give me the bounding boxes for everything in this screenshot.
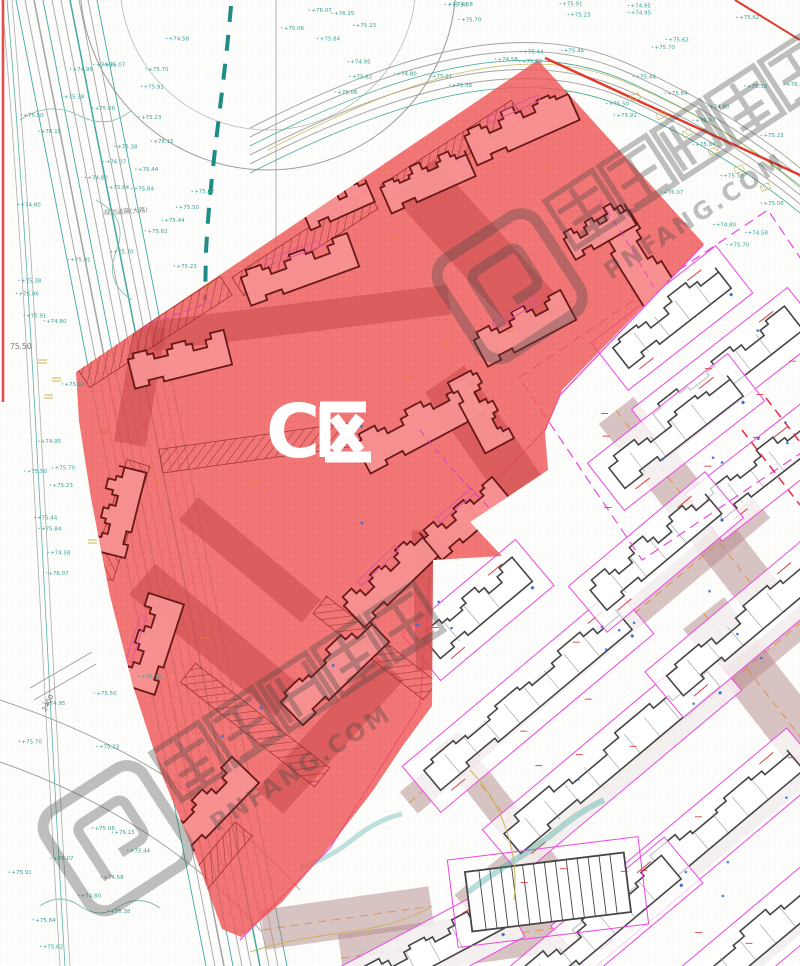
spot-elevation: +75.06 [284, 26, 305, 32]
spot-elevation: +75.62 [43, 944, 63, 950]
spot-elevation-dot [103, 161, 104, 162]
spot-elevation-dot [24, 470, 25, 471]
spot-elevation: +75.44 [635, 75, 656, 81]
spot-elevation: +75.91 [144, 84, 164, 90]
spot-elevation: +75.44 [564, 48, 585, 54]
spot-elevation: +75.50 [27, 469, 48, 475]
survey-point [721, 461, 724, 464]
site-plan: +75.38+75.44+75.50+75.62+75.84+75.91+74.… [0, 0, 800, 966]
spot-elevation: +76.15 [334, 11, 355, 17]
spot-elevation-dot [166, 38, 167, 39]
spot-elevation: +74.95 [630, 3, 651, 9]
spot-elevation: +76.15 [41, 129, 62, 135]
spot-elevation: +75.50 [609, 102, 630, 108]
spot-elevation: +76.15 [141, 674, 162, 680]
spot-elevation-dot [761, 202, 762, 203]
spot-elevation-dot [726, 244, 727, 245]
spot-elevation: +75.70 [22, 739, 43, 745]
spot-elevation-dot [693, 120, 694, 121]
spot-elevation: +75.38 [64, 94, 85, 100]
spot-elevation-dot [19, 741, 20, 742]
spot-elevation-dot [94, 692, 95, 693]
spot-elevation-dot [61, 96, 62, 97]
site-plan-map: +75.38+75.44+75.50+75.62+75.84+75.91+74.… [0, 0, 800, 966]
spot-elevation-dot [519, 61, 520, 62]
spot-elevation: +75.62 [147, 229, 167, 235]
survey-point [757, 437, 760, 440]
spot-elevation-dot [93, 64, 94, 65]
spot-elevation-dot [176, 207, 177, 208]
survey-point [692, 702, 695, 705]
spot-elevation: +75.62 [64, 382, 84, 388]
spot-elevation-dot [151, 140, 152, 141]
survey-point [786, 442, 789, 445]
spot-elevation-dot [561, 50, 562, 51]
spot-elevation: +75.38 [447, 2, 468, 8]
survey-point [722, 895, 725, 898]
spot-elevation: +75.70 [655, 45, 676, 51]
survey-point [221, 735, 224, 738]
spot-elevation: +75.84 [695, 142, 716, 148]
spot-elevation: +74.80 [396, 71, 417, 77]
spot-elevation: +75.23 [141, 115, 162, 121]
spot-elevation: +75.50 [23, 113, 44, 119]
spot-elevation: +75.70 [148, 67, 169, 73]
spot-elevation-dot [33, 919, 34, 920]
spot-elevation-dot [335, 91, 336, 92]
spot-elevation-dot [744, 85, 745, 86]
spot-elevation: +75.23 [176, 264, 197, 270]
spot-elevation-dot [429, 75, 430, 76]
spot-elevation: +75.06 [763, 201, 784, 207]
spot-elevation: +75.91 [616, 113, 636, 119]
spot-elevation-dot [521, 51, 522, 52]
spot-elevation-dot [348, 61, 349, 62]
spot-elevation-dot [135, 168, 136, 169]
spot-elevation-dot [309, 9, 310, 10]
spot-elevation: +75.91 [70, 258, 90, 264]
survey-point [577, 778, 580, 781]
spot-elevation-dot [18, 280, 19, 281]
spot-elevation-dot [18, 204, 19, 205]
spot-elevation-dot [445, 4, 446, 5]
zone-label-c: C [266, 389, 320, 475]
spot-elevation-dot [68, 259, 69, 260]
survey-point [416, 624, 419, 627]
spot-elevation: +74.58 [169, 36, 190, 42]
spot-elevation-dot [449, 84, 450, 85]
spot-elevation-dot [652, 46, 653, 47]
spot-elevation: +75.70 [113, 250, 134, 256]
spot-elevation: +75.06 [18, 291, 39, 297]
spot-elevation: +75.62 [668, 38, 688, 44]
spot-elevation-dot [693, 144, 694, 145]
spot-elevation-dot [721, 175, 722, 176]
spot-elevation-dot [349, 76, 350, 77]
spot-elevation-dot [85, 177, 86, 178]
spot-elevation: +74.95 [631, 11, 652, 17]
spot-elevation: +74.58 [498, 57, 519, 63]
spot-elevation: +75.44 [138, 167, 159, 173]
spot-elevation-dot [92, 827, 93, 828]
spot-elevation: +75.62 [739, 15, 759, 21]
spot-elevation-dot [666, 39, 667, 40]
survey-point [661, 458, 664, 461]
spot-elevation-dot [102, 64, 103, 65]
spot-elevation-dot [115, 146, 116, 147]
spot-elevation-dot [665, 92, 666, 93]
spot-elevation-dot [38, 528, 39, 529]
spot-elevation-dot [38, 131, 39, 132]
survey-point [727, 861, 730, 864]
spot-elevation: +75.23 [52, 483, 73, 489]
spot-elevation-dot [317, 38, 318, 39]
spot-elevation-dot [736, 17, 737, 18]
spot-elevation: +75.38 [117, 144, 138, 150]
spot-elevation: +75.23 [570, 12, 591, 18]
spot-elevation: +75.84 [320, 37, 341, 43]
spot-elevation: +75.70 [729, 243, 750, 249]
spot-elevation-dot [628, 5, 629, 6]
spot-elevation: +75.50 [179, 205, 200, 211]
spot-elevation: +75.38 [452, 83, 473, 89]
survey-point [618, 629, 621, 632]
spot-elevation: +75.70 [55, 466, 76, 472]
spot-elevation: +75.91 [562, 2, 582, 8]
spot-elevation-dot [70, 68, 71, 69]
spot-elevation-dot [52, 467, 53, 468]
spot-elevation: +75.91 [11, 870, 31, 876]
spot-elevation: +76.07 [48, 571, 69, 577]
spot-elevation-dot [92, 107, 93, 108]
survey-point [437, 601, 440, 604]
spot-elevation-dot [34, 517, 35, 518]
spot-elevation: +75.06 [337, 90, 358, 96]
spot-elevation: +74.80 [87, 176, 108, 182]
spot-elevation: +75.62 [194, 189, 214, 195]
spot-elevation-dot [146, 68, 147, 69]
spot-elevation: +74.80 [20, 202, 41, 208]
spot-elevation: +75.38 [21, 278, 42, 284]
spot-elevation-dot [713, 224, 714, 225]
spot-elevation-dot [145, 230, 146, 231]
spot-elevation-dot [47, 552, 48, 553]
survey-point [756, 329, 759, 332]
survey-point [332, 664, 335, 667]
spot-elevation-dot [9, 872, 10, 873]
survey-point [760, 657, 763, 660]
spot-elevation: +75.44 [164, 218, 185, 224]
spot-elevation-dot [50, 484, 51, 485]
spot-elevation-dot [633, 76, 634, 77]
spot-elevation-dot [23, 315, 24, 316]
spot-elevation: +75.62 [352, 74, 372, 80]
spot-elevation: +75.23 [763, 133, 784, 139]
spot-elevation-dot [38, 441, 39, 442]
spot-elevation-dot [43, 320, 44, 321]
spot-elevation: +75.06 [95, 106, 116, 112]
spot-elevation-dot [46, 572, 47, 573]
spot-elevation-dot [96, 746, 97, 747]
spot-elevation: +74.58 [50, 551, 71, 557]
spot-elevation: +76.07 [311, 8, 332, 14]
spot-elevation-dot [16, 293, 17, 294]
spot-elevation-dot [761, 135, 762, 136]
spot-elevation: +75.23 [356, 23, 377, 29]
spot-elevation-dot [331, 13, 332, 14]
spot-elevation-dot [106, 186, 107, 187]
survey-point [712, 456, 715, 459]
spot-elevation-dot [141, 86, 142, 87]
survey-point [450, 627, 453, 630]
spot-elevation: +75.84 [134, 187, 155, 193]
spot-elevation: +76.07 [106, 160, 127, 166]
spot-elevation: +75.44 [523, 50, 544, 56]
zone-label: C [266, 389, 371, 475]
spot-elevation: +75.50 [522, 59, 543, 65]
spot-elevation: +74.80 [716, 223, 737, 229]
spot-elevation-dot [745, 232, 746, 233]
spot-elevation-dot [51, 858, 52, 859]
spot-elevation-dot [62, 383, 63, 384]
elevation-label: 75.50 [10, 342, 32, 351]
survey-point [633, 621, 636, 624]
survey-point [601, 625, 604, 628]
spot-elevation-dot [458, 19, 459, 20]
spot-elevation-dot [138, 116, 139, 117]
spot-elevation-dot [21, 114, 22, 115]
spot-elevation-dot [628, 12, 629, 13]
spot-elevation: +76.15 [153, 139, 174, 145]
spot-elevation-dot [111, 251, 112, 252]
spot-elevation: +75.70 [461, 17, 482, 23]
spot-elevation-dot [174, 265, 175, 266]
spot-elevation: +74.58 [748, 230, 769, 236]
survey-point [708, 590, 711, 593]
survey-point [605, 648, 608, 651]
spot-elevation: +74.95 [41, 439, 62, 445]
spot-elevation: +75.44 [37, 515, 58, 521]
spot-elevation-dot [40, 946, 41, 947]
spot-elevation: +74.80 [46, 319, 67, 325]
spot-elevation-dot [353, 25, 354, 26]
spot-elevation: +76.07 [105, 63, 126, 69]
spot-elevation: +74.95 [72, 67, 93, 73]
spot-elevation: +75.84 [35, 918, 56, 924]
spot-elevation-dot [606, 103, 607, 104]
survey-point [360, 522, 363, 525]
spot-elevation: +75.91 [432, 74, 452, 80]
survey-point [784, 421, 787, 424]
spot-elevation-dot [495, 58, 496, 59]
spot-elevation: +74.95 [350, 60, 371, 66]
spot-elevation: +76.15 [114, 830, 135, 836]
survey-point [685, 871, 688, 874]
spot-elevation: +75.84 [41, 526, 62, 532]
spot-elevation-dot [560, 3, 561, 4]
spot-elevation: +75.91 [26, 313, 46, 319]
spot-elevation-dot [162, 220, 163, 221]
spot-elevation-dot [394, 73, 395, 74]
spot-elevation: +75.84 [667, 91, 688, 97]
spot-elevation: +75.06 [95, 826, 116, 832]
spot-elevation-dot [192, 191, 193, 192]
spot-elevation-dot [281, 27, 282, 28]
survey-point [736, 633, 739, 636]
spot-elevation: +75.23 [99, 744, 120, 750]
spot-elevation-dot [139, 676, 140, 677]
spot-elevation-dot [568, 14, 569, 15]
spot-elevation: +75.50 [96, 691, 117, 697]
survey-point [785, 796, 788, 799]
spot-elevation: +75.84 [109, 185, 130, 191]
spot-elevation-dot [131, 188, 132, 189]
spot-elevation-dot [614, 114, 615, 115]
